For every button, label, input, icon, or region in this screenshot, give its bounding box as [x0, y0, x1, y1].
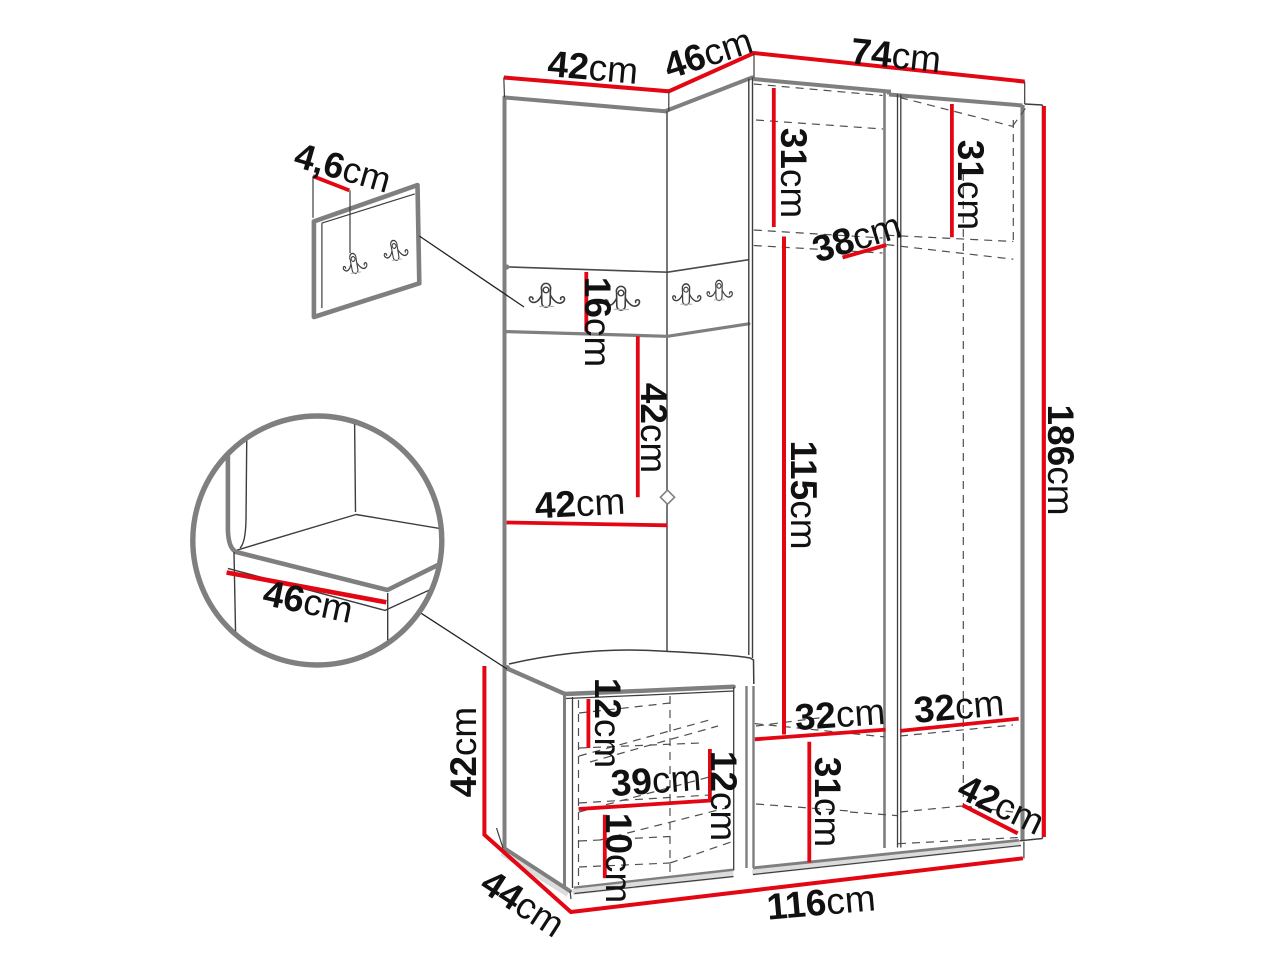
svg-text:31cm: 31cm	[773, 128, 814, 218]
svg-text:115cm: 115cm	[783, 440, 824, 549]
svg-text:12cm: 12cm	[587, 678, 628, 768]
svg-text:16cm: 16cm	[577, 277, 618, 367]
svg-text:31cm: 31cm	[807, 757, 848, 847]
svg-text:42cm: 42cm	[633, 383, 674, 473]
svg-text:42cm: 42cm	[546, 43, 640, 92]
svg-text:32cm: 32cm	[793, 691, 886, 738]
svg-text:32cm: 32cm	[912, 682, 1006, 731]
svg-text:39cm: 39cm	[609, 757, 702, 804]
svg-text:42cm: 42cm	[443, 707, 484, 797]
svg-text:12cm: 12cm	[703, 751, 744, 841]
svg-text:31cm: 31cm	[950, 140, 991, 230]
svg-text:42cm: 42cm	[534, 481, 627, 527]
svg-text:186cm: 186cm	[1040, 404, 1081, 515]
svg-text:10cm: 10cm	[598, 813, 639, 903]
